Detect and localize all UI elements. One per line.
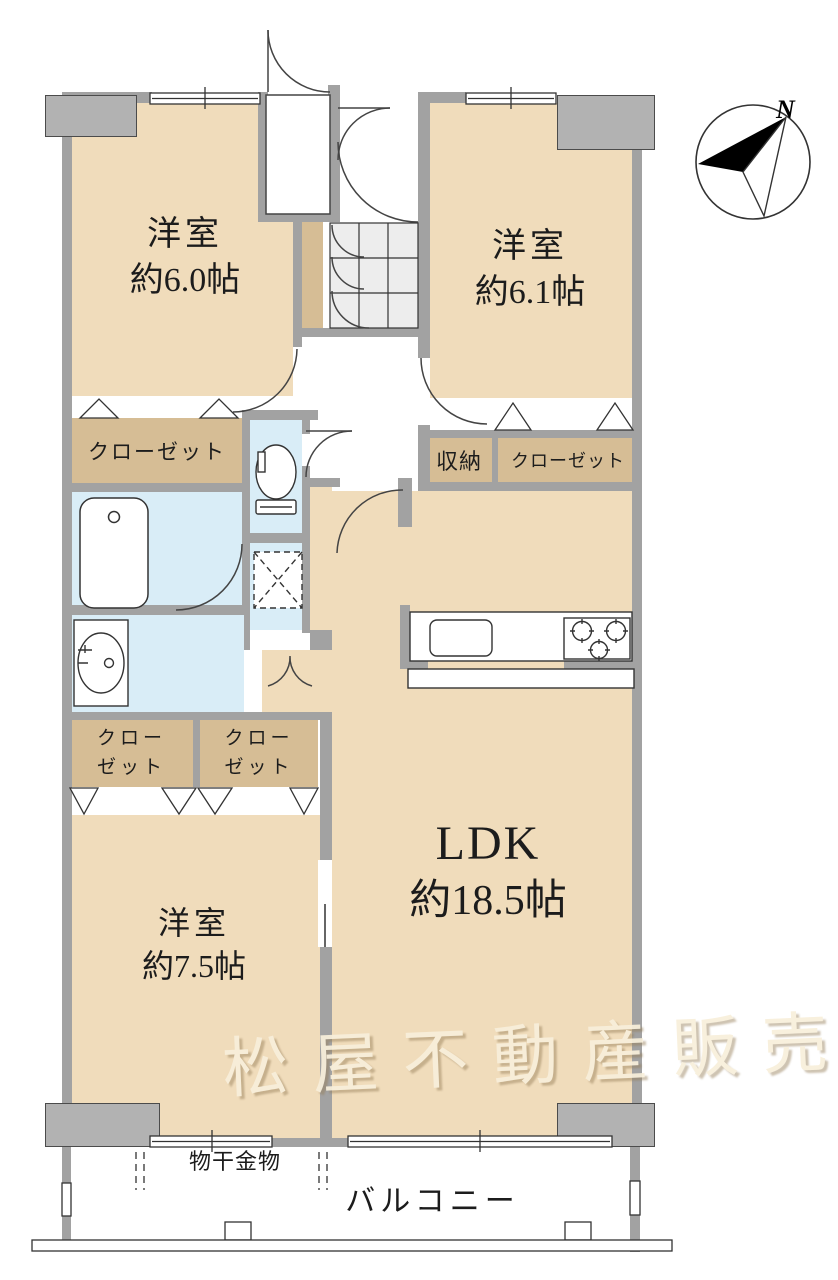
closet-label-text: クローゼット: [88, 436, 226, 466]
drying-hardware-text: 物干金物: [189, 1144, 281, 1176]
room-name: 洋室: [158, 902, 230, 945]
room-name: 洋室: [492, 224, 568, 270]
genkan-door-arc: [338, 142, 418, 222]
closet-sw-left-label: クロー ゼット: [70, 720, 193, 787]
closet-label-line1: クロー: [97, 725, 166, 754]
bedroom-ne-door-arc: [421, 358, 487, 424]
room-size: 約18.5帖: [409, 874, 567, 929]
genkan-tile-floor: [330, 223, 418, 328]
ldk-door-arc: [337, 490, 403, 553]
room-label-bedroom-ne: 洋室 約6.1帖: [428, 210, 632, 330]
laundry-pan-icon: [254, 552, 302, 608]
entry-alcove: [266, 95, 330, 214]
door-arcs: [176, 30, 487, 686]
room-size: 約7.5帖: [142, 945, 246, 988]
room-size: 約6.0帖: [130, 258, 241, 304]
compass-north-label: N: [775, 95, 796, 124]
closet-label-line2: ゼット: [97, 754, 166, 783]
balcony-label: バルコニー: [325, 1178, 540, 1218]
compass-rose: N: [696, 95, 810, 219]
entry-door-arc: [268, 30, 330, 92]
shuno-label: 収納: [426, 438, 492, 482]
closet-label-line1: クロー: [224, 725, 293, 754]
washroom-bifold-door: [268, 656, 312, 686]
toilet-door-arc: [306, 431, 352, 477]
balcony-text: バルコニー: [345, 1176, 519, 1220]
kitchen-counter: [408, 612, 634, 688]
closet-sw-right-label: クロー ゼット: [200, 720, 318, 787]
drying-hardware-label: 物干金物: [160, 1146, 310, 1174]
porch-door-arc: [338, 108, 390, 160]
toilet-icon: [256, 445, 296, 514]
room-size: 約6.1帖: [475, 270, 586, 316]
stove-icon: [564, 618, 630, 659]
closet-label-line2: ゼット: [224, 754, 293, 783]
room-label-ldk: LDK 約18.5帖: [360, 796, 616, 946]
closet-nw-label: クローゼット: [72, 418, 242, 483]
room-label-bedroom-nw: 洋室 約6.0帖: [75, 198, 295, 318]
room-label-bedroom-sw: 洋室 約7.5帖: [78, 880, 310, 1010]
closet-ne-label: クローゼット: [498, 438, 638, 482]
shuno-label-text: 収納: [436, 444, 482, 476]
kitchen-sink-icon: [430, 620, 492, 656]
bedroom-nw-door-arc: [233, 349, 297, 412]
bathtub-icon: [80, 498, 148, 608]
washbasin-icon: [74, 620, 128, 706]
floorplan-canvas: N 洋室 約6.0帖 洋室 約6.1帖 LDK 約18.5帖 洋室 約7.5帖 …: [0, 0, 838, 1280]
closet-label-text: クローゼット: [511, 447, 625, 473]
room-name: LDK: [436, 814, 541, 874]
sliding-door-bedroom-sw: [318, 860, 332, 947]
bathroom-door-arc: [176, 544, 242, 610]
room-name: 洋室: [147, 212, 223, 258]
